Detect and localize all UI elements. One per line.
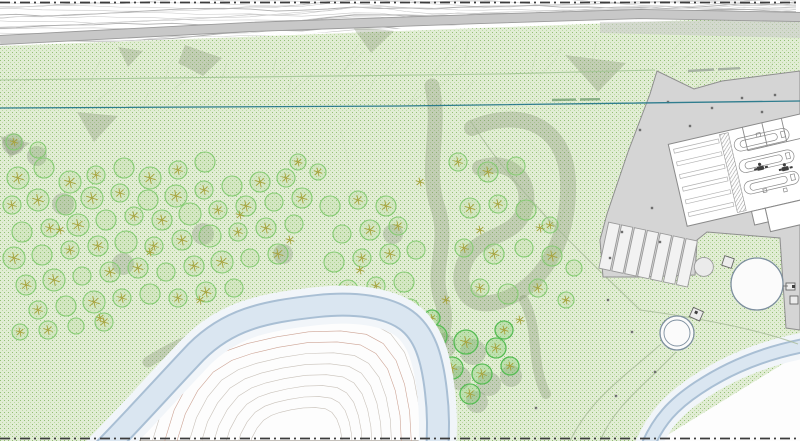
tree — [56, 195, 76, 215]
tree — [179, 203, 201, 225]
tree — [285, 215, 303, 233]
survey-dot — [535, 407, 537, 409]
survey-dot — [774, 94, 776, 96]
tree — [96, 210, 116, 230]
site-plan-canvas — [0, 0, 800, 441]
tree — [241, 249, 259, 267]
survey-dot — [654, 371, 656, 373]
tree — [566, 260, 582, 276]
survey-dot — [609, 257, 611, 259]
survey-dot — [651, 207, 653, 209]
site-plan-drawing — [0, 0, 800, 441]
large-tank — [731, 258, 783, 310]
tree — [115, 231, 137, 253]
tree — [199, 225, 221, 247]
tree — [56, 296, 76, 316]
survey-dot — [639, 129, 641, 131]
tree — [333, 225, 351, 243]
tree — [498, 284, 518, 304]
tree — [157, 263, 175, 281]
tree — [222, 176, 242, 196]
survey-dot — [621, 231, 623, 233]
tree — [73, 267, 91, 285]
tree — [515, 239, 533, 257]
survey-dot — [659, 241, 661, 243]
tree — [140, 284, 160, 304]
survey-dot — [741, 97, 743, 99]
survey-dot — [631, 331, 633, 333]
tree — [32, 245, 52, 265]
small-tank — [660, 316, 694, 350]
tree — [507, 157, 525, 175]
tree — [320, 196, 340, 216]
tree — [12, 222, 32, 242]
survey-dot — [761, 111, 763, 113]
survey-dot — [615, 395, 617, 397]
tree — [394, 272, 414, 292]
tree — [265, 193, 283, 211]
tree — [114, 158, 134, 178]
tree — [138, 190, 158, 210]
tree — [34, 158, 54, 178]
tree — [68, 318, 84, 334]
survey-dot — [607, 299, 609, 301]
tree — [225, 279, 243, 297]
survey-dot — [711, 107, 713, 109]
tree — [324, 252, 344, 272]
survey-dot — [689, 125, 691, 127]
tree — [407, 241, 425, 259]
tree — [30, 142, 46, 158]
tree — [195, 152, 215, 172]
